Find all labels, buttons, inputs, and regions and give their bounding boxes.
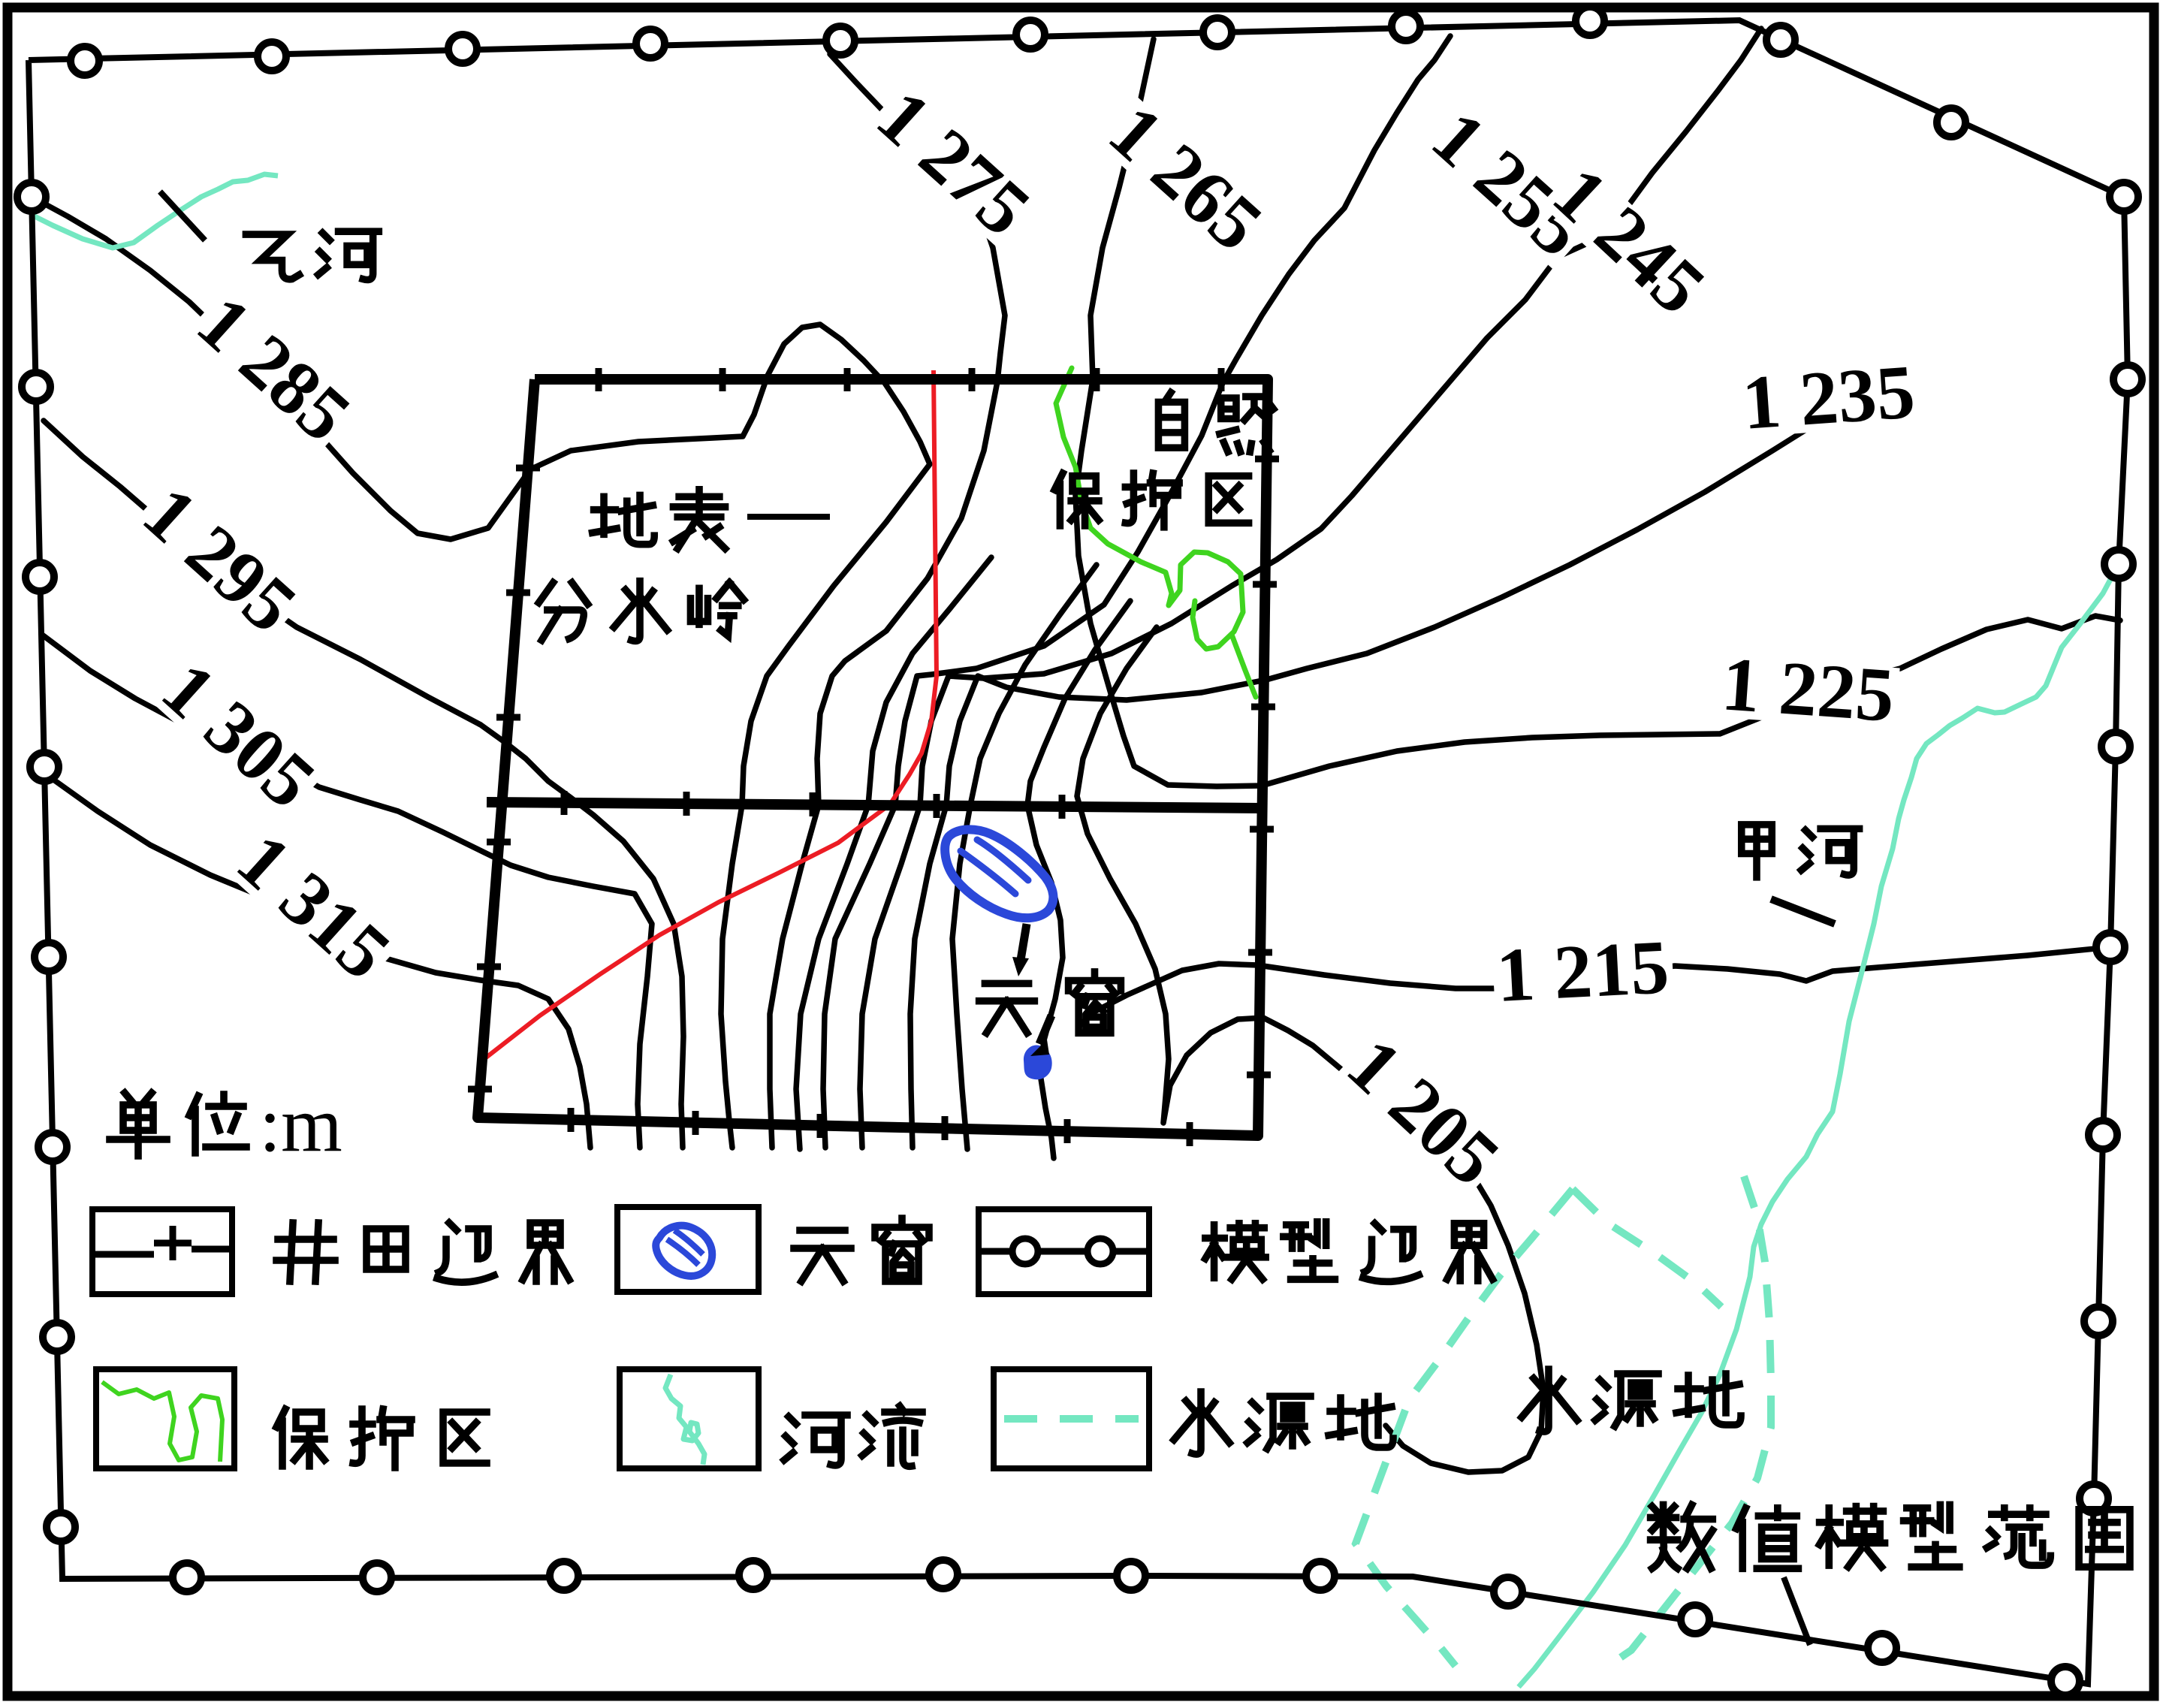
svg-text:1 215: 1 215 xyxy=(1495,925,1671,1018)
svg-text:1 225: 1 225 xyxy=(1719,641,1897,738)
svg-text:1 235: 1 235 xyxy=(1739,349,1917,446)
svg-text::m: :m xyxy=(259,1080,342,1168)
